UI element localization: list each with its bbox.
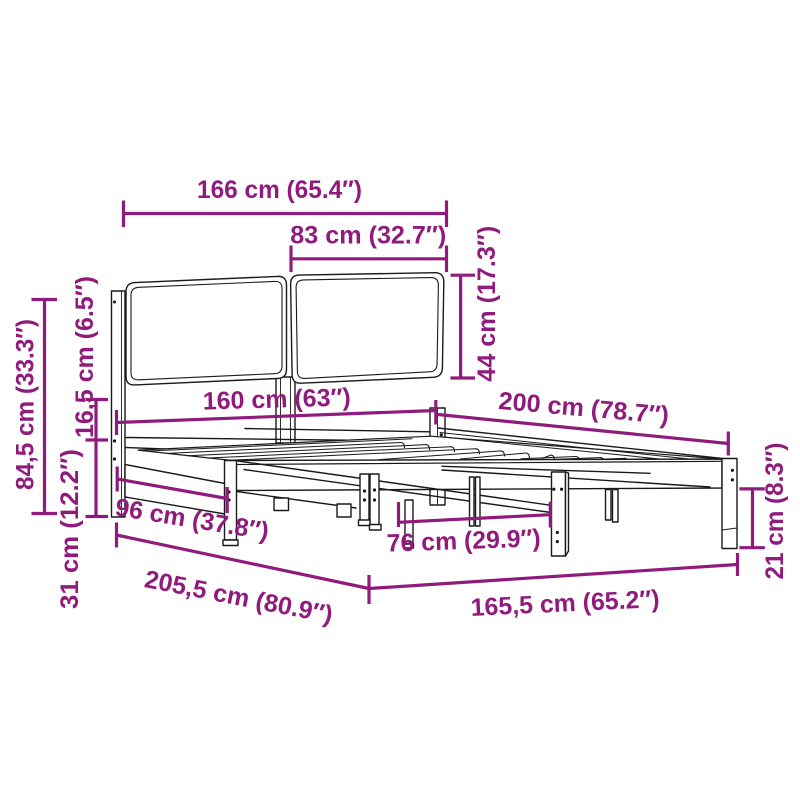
svg-text:44 cm (17.3″): 44 cm (17.3″) <box>473 226 501 382</box>
svg-text:21 cm (8.3″): 21 cm (8.3″) <box>761 443 789 580</box>
svg-text:16,5 cm (6.5″): 16,5 cm (6.5″) <box>71 276 99 438</box>
svg-text:166 cm (65.4″): 166 cm (65.4″) <box>197 176 362 204</box>
svg-text:76 cm (29.9″): 76 cm (29.9″) <box>386 524 541 557</box>
svg-text:160 cm (63″): 160 cm (63″) <box>202 383 351 415</box>
svg-text:84,5 cm (33.3″): 84,5 cm (33.3″) <box>12 319 40 490</box>
svg-text:83 cm (32.7″): 83 cm (32.7″) <box>290 222 446 250</box>
svg-text:31 cm (12.2″): 31 cm (12.2″) <box>56 449 84 609</box>
